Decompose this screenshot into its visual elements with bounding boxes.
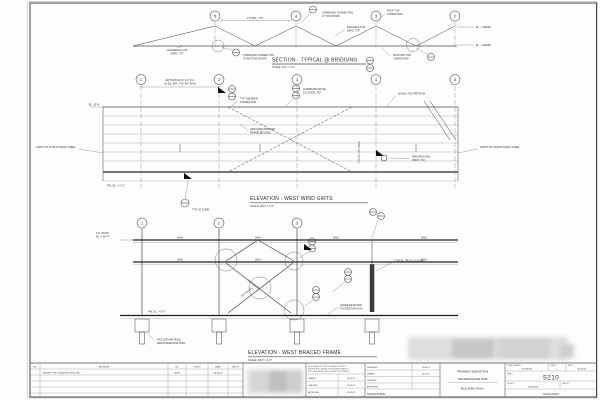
detail-bubble-icon [301,6,317,23]
signoff-row-label: DRAWN [367,372,375,375]
beam-label: W14 [421,235,427,239]
grid-bubble: 3 [292,75,302,85]
callout-roof-top-chord: CHORD PEAK [387,13,403,16]
grid-bubble: 5 [450,75,460,85]
grid-bubble-label: 5 [454,77,457,82]
building-name: BUILDING 04-61 [461,387,484,391]
grid-bubble-label: 3 [296,221,299,226]
rev-header-approved: APP'D [232,366,239,369]
dwg-number-label: DWG NO. [562,383,570,385]
finished-elevation-label: FIN. EL. = 0'-0" [148,310,166,314]
rev-date: 05-05-11 [214,373,223,375]
callout-sag-rods: RODS, TYP. [412,159,426,162]
comm-number-value: W-582476 [522,369,533,371]
approval-row-label: APPROVED [308,391,320,394]
title-strip: NO. REVISION BY CHK'D DATE APP'D - ISSUE… [30,363,597,397]
connection-detail-ring-icon [215,249,237,271]
beam-label: W14 [177,257,183,261]
beam-label: W14 [255,235,261,239]
dwg-number-value: 04-00-S210 [543,392,559,396]
rev-header-checked: CHK'D [194,367,201,369]
braced-frame-title: ELEVATION - WEST BRACED FRAME [248,350,341,356]
spa-dimension-text: 2'-6" SPA., TYP. [247,17,264,20]
section-title: SECTION - TYPICAL @ BRIDGING [272,58,357,64]
brace-size-label: HSS 8x8x3/8 [240,287,253,298]
grid-bubble: 4 [371,75,381,85]
pile-cap [212,319,226,344]
grid-bubble-label: 3 [375,14,378,19]
cad-number-value: W-826782 [528,386,539,388]
grid-bubble: 2 [214,75,224,85]
callout-roof-bottom-chord: CHORD PEAK [393,58,409,61]
grid-bubble: 1 [137,218,147,228]
grid-bubble: 2 [214,218,224,228]
signoff-row-label: CHECKED [367,380,377,382]
sag-rod-marker-icon [381,155,387,161]
scale-label: SCALE [550,364,556,367]
grid-bubble: 5 [210,11,220,21]
signoff-row-value: 05-05-11 [422,367,431,369]
drawing-title: FRAMING ELEVATION [457,370,488,374]
pile-cap [365,319,379,344]
detail-bubble-icon [370,209,385,239]
sheet-number: S210 [543,374,560,381]
revision-table: NO. REVISION BY CHK'D DATE APP'D - ISSUE… [30,363,243,397]
comm-number-label: COMM. NUMBER [507,365,521,367]
signoff-row-value: 05-05-11 [422,373,431,375]
date-label: DATE [568,364,573,367]
discipline-label: STRUCTURAL [367,392,386,396]
finished-elevation-label: FIN. EL. = 0'-0" [107,184,125,188]
callout-braced-frame-beyond: INDICATES BRACED [250,127,275,131]
approval-row-date: 05-05-11 [347,392,356,394]
detail-bubble-icon [367,57,374,72]
drawing-sheet: 5 4 3 2 2'-6" SPA., TYP. [0,0,600,400]
scale-value: - [557,369,558,371]
west-braced-frame-view: 1 2 3 W14 W14 W14 W14 W14 W14 W1 [96,209,458,363]
section-flag-icon [218,87,226,93]
grid-bubble-label: 4 [375,77,378,82]
detail-bubble-icon [305,287,320,307]
approval-block: ACCEPTANCE OF THIS DOCUMENT DOES NOT REL… [306,365,365,397]
sheet-number-box: COMM. NUMBER W-582476 SCALE - DATE 05-05… [505,363,597,396]
approval-row-label: DRAWN [308,377,316,380]
grid-bubble-label: 4 [295,14,298,19]
callout-truss-column: TYPICAL TRUSS COLUMN [394,260,424,263]
detail-bubble-icon [222,48,240,57]
signoff-row-label: DESIGNED [367,367,378,369]
grid-bubble: 2 [450,11,460,21]
cad-number-label: CAD NO. [507,382,515,385]
approval-row-date: 05-05-11 [347,385,356,387]
bays-note-vertical: TYP. ALL INT. BAYS [358,141,361,163]
redacted-logo [247,369,303,394]
truss-column [370,264,375,312]
callout-top-chord-conn: AT TOP CHORD [322,15,340,18]
section-scale: SCALE: 3/4" = 1'-0" [272,65,295,69]
elevation-label-high: EL. + VARIES [476,26,491,29]
elevation-top-label: EL. 25'-4" [89,103,100,107]
west-wind-girts-view: 1 2 3 4 5 [36,75,520,212]
signoff-block: DESIGNED 05-05-11 DRAWN 05-05-11 CHECKED… [365,363,440,396]
rev-header-date: DATE [215,366,221,369]
rev-header-revision: REVISION [99,367,110,369]
callout-clip-daps-right: DAPS, TYP. [347,30,360,33]
rev-no: - [35,373,36,375]
grid-bubble-label: 2 [218,77,221,82]
grid-bubble: 3 [292,218,302,228]
rev-description: ISSUED FOR CONSTRUCTION - BID [43,373,81,375]
approval-row-label: CHECKED [308,385,318,387]
project-name: THE WAREHOUSE PARK [457,377,488,381]
grid-bubble-label: 3 [296,77,299,82]
wind-girts-scale: SCALE: 3/16" = 1'-0" [250,204,274,208]
grid-bubble-label: 1 [140,77,143,82]
grid-bubble-label: 5 [214,14,217,19]
detail-bubble-icon [181,181,189,207]
rev-header-no: NO. [33,367,37,369]
callout-beam-tag: W14x26, TAG PER PLAN [398,93,426,96]
callout-beam-connection: CONNECTION [240,101,256,104]
callout-splice-location: LOCATION, TYP. [303,92,322,95]
detail-bubble-icon [229,86,236,101]
beam-label: W14 [255,257,261,261]
grid-bubble-label: 2 [454,14,457,19]
sheet-label: SHEET [507,374,513,376]
callout-bottom-chord-conn: TO BOTTOM CHORD [243,58,267,61]
section-typical-bridging-view: 5 4 3 2 2'-6" SPA., TYP. [133,6,491,72]
top-of-roof-label: T.O. ROOF [96,231,109,235]
callout-typ-at-curb: TYP. AT CURB [192,208,209,212]
callout-clip-daps-left: DAPS, TYP. [171,53,184,56]
redacted-stamp [408,337,574,360]
project-title-block: FRAMING ELEVATION THE WAREHOUSE PARK BUI… [447,370,498,391]
grid-bubble-label: 2 [218,221,221,226]
grid-bubble: 4 [291,11,301,21]
elevation-label-low: EL. + VARIES [476,44,491,47]
beam-label: W14 [333,235,339,239]
wind-girts-title: ELEVATION - WEST WIND GIRTS [250,196,333,202]
rev-by: MJW [175,373,181,375]
detail-bubble-icon [416,48,435,61]
approval-note: FOR COMPLIANCE WITH CONTRACT DOCUMENTS [308,370,350,373]
girt-note: (3) EQ. SPA., TYP. INT. BAYS [164,83,196,86]
grid-bubble-label: 1 [141,221,144,226]
braced-frame-scale: SCALE: 3/16" = 1'-0" [248,358,272,362]
callout-pile-cap: PER FOUNDATION PLAN [157,342,185,345]
grid-bubble: 1 [136,75,146,85]
signoff-row-label: APPROVED [367,385,379,388]
callout-grade-beam: FOUNDATION PLAN [340,308,363,311]
approval-row-date: 05-05-11 [347,378,356,380]
beam-label: W14 [177,235,183,239]
top-of-roof-label: EL. = 25'-4" [96,235,110,239]
date-value: 05-05-11 [578,369,587,371]
pile-cap [135,319,149,344]
callout-braced-frame-beyond: FRAME BEYOND [250,131,271,135]
detail-bubble-icon [285,85,300,107]
revision-row: - ISSUED FOR CONSTRUCTION - BID MJW 05-0… [35,373,223,375]
pile-cap [290,319,304,344]
detail-bubble-icon [332,269,352,293]
rev-header-by: BY [176,367,179,369]
limits-of-steel-right: LIMITS OF STRUCTURAL STEEL [480,145,520,149]
limits-of-steel-left: LIMITS OF STRUCTURAL STEEL [36,145,76,149]
section-flag-icon [184,173,192,179]
